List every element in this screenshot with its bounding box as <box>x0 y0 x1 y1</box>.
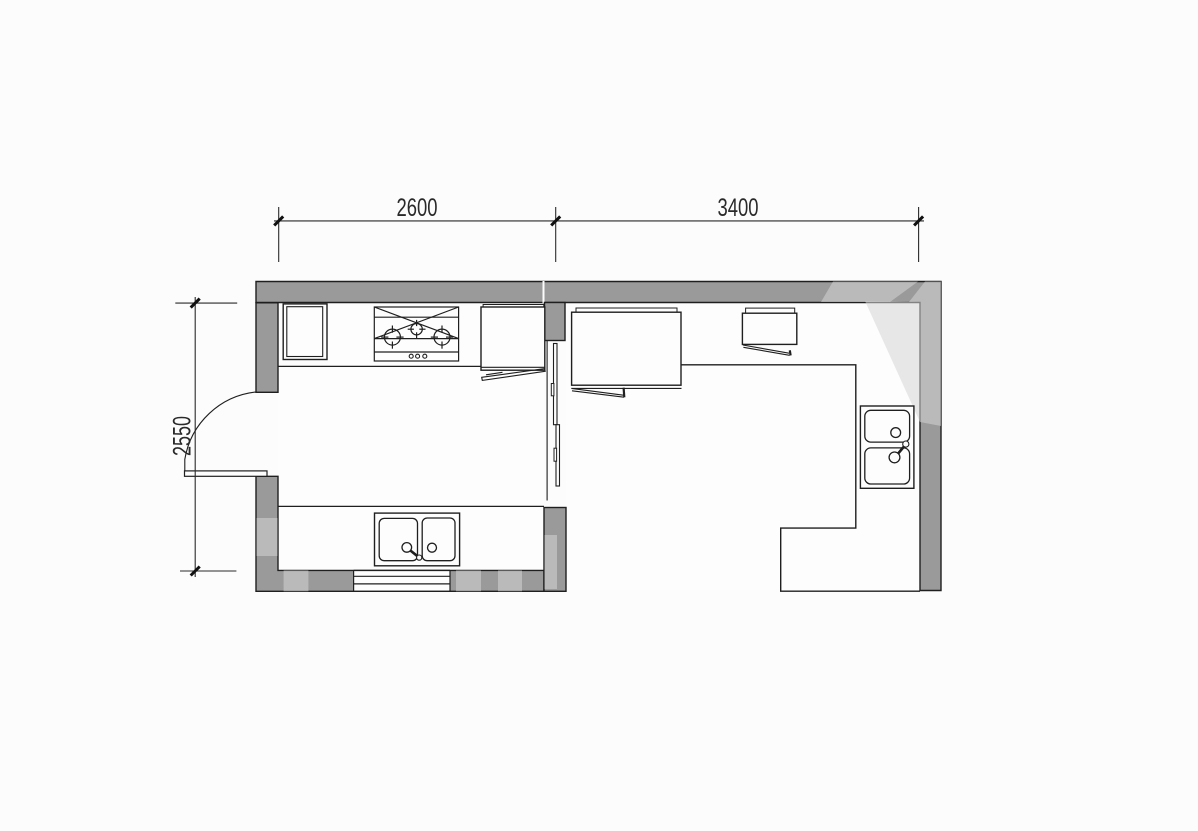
svg-text:3400: 3400 <box>718 195 759 222</box>
svg-text:2600: 2600 <box>397 195 438 222</box>
svg-text:2550: 2550 <box>170 416 197 456</box>
